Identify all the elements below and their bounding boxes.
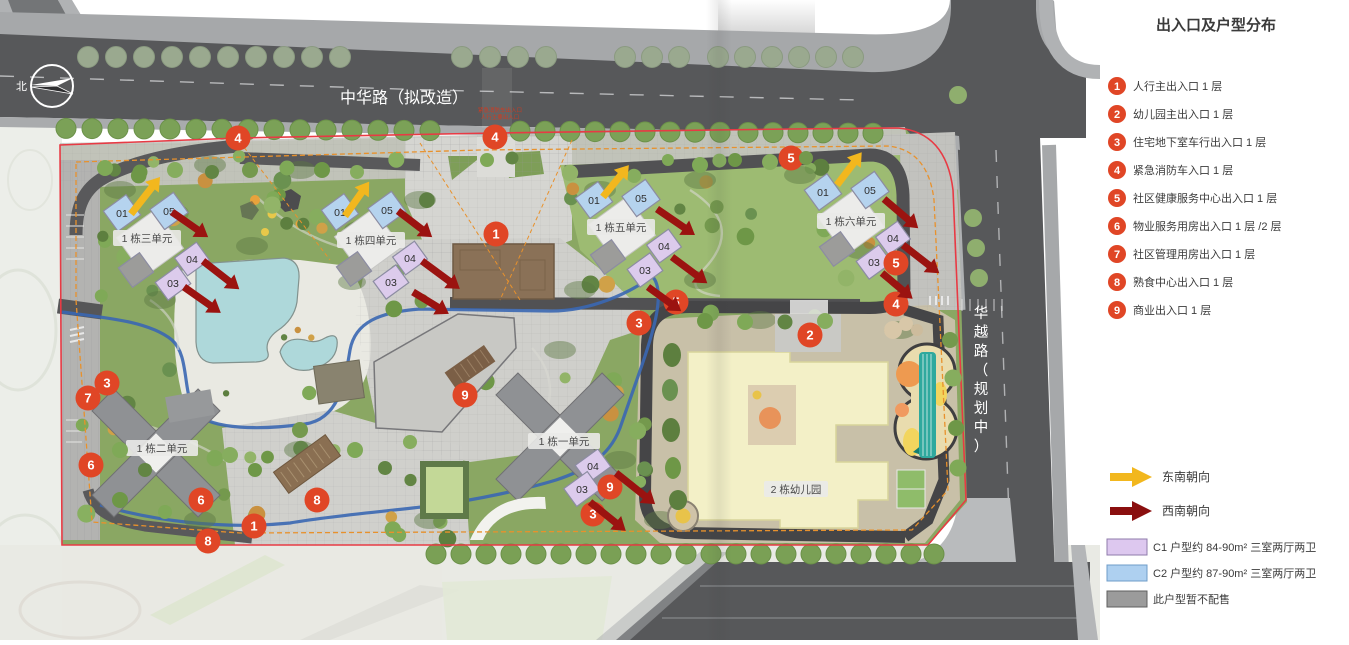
svg-text:物业服务用房出入口 1 层 /2 层: 物业服务用房出入口 1 层 /2 层 [1133, 219, 1282, 233]
svg-text:03: 03 [385, 277, 397, 289]
svg-text:8: 8 [1114, 277, 1120, 289]
svg-text:1 栋五单元: 1 栋五单元 [596, 221, 647, 234]
svg-text:9: 9 [1114, 305, 1120, 317]
svg-text:3: 3 [635, 316, 642, 331]
svg-text:规: 规 [974, 381, 989, 398]
svg-text:幼儿园主出入口 1 层: 幼儿园主出入口 1 层 [1133, 107, 1233, 121]
svg-text:住宅地下室车行出入口 1 层: 住宅地下室车行出入口 1 层 [1133, 135, 1266, 149]
svg-text:01: 01 [588, 195, 600, 207]
svg-text:05: 05 [381, 205, 393, 217]
svg-text:人行主要出入口: 人行主要出入口 [481, 113, 520, 121]
svg-text:03: 03 [868, 257, 880, 269]
svg-text:9: 9 [461, 388, 468, 403]
svg-text:中: 中 [974, 419, 989, 436]
svg-text:04: 04 [404, 253, 416, 265]
svg-text:此户型暂不配售: 此户型暂不配售 [1153, 592, 1230, 606]
svg-text:社区管理用房出入口 1 层: 社区管理用房出入口 1 层 [1133, 247, 1255, 261]
svg-text:8: 8 [204, 534, 211, 549]
svg-text:1: 1 [1114, 81, 1120, 93]
svg-text:路: 路 [974, 343, 989, 360]
svg-text:03: 03 [576, 484, 588, 496]
svg-text:C1 户型约 84-90m² 三室两厅两卫: C1 户型约 84-90m² 三室两厅两卫 [1153, 540, 1316, 554]
svg-text:05: 05 [864, 185, 876, 197]
svg-text:人行主出入口 1 层: 人行主出入口 1 层 [1133, 79, 1222, 93]
svg-text:5: 5 [892, 256, 899, 271]
svg-text:7: 7 [1114, 249, 1120, 261]
svg-text:越: 越 [974, 324, 989, 341]
svg-text:04: 04 [887, 233, 899, 245]
svg-text:4: 4 [892, 297, 900, 312]
svg-text:1 栋一单元: 1 栋一单元 [539, 435, 590, 448]
svg-text:04: 04 [658, 241, 670, 253]
svg-text:03: 03 [639, 265, 651, 277]
svg-text:2 栋幼儿园: 2 栋幼儿园 [771, 483, 822, 496]
svg-text:6: 6 [87, 458, 94, 473]
svg-text:中华路（拟改造）: 中华路（拟改造） [340, 89, 468, 107]
svg-text:4: 4 [1114, 165, 1121, 177]
svg-text:7: 7 [84, 391, 91, 406]
svg-text:1: 1 [250, 519, 257, 534]
svg-text:5: 5 [1114, 193, 1120, 205]
svg-text:2: 2 [1114, 109, 1120, 121]
svg-text:1 栋三单元: 1 栋三单元 [122, 232, 173, 245]
svg-text:社区健康服务中心出入口 1 层: 社区健康服务中心出入口 1 层 [1133, 191, 1277, 205]
svg-text:出入口及户型分布: 出入口及户型分布 [1156, 16, 1276, 34]
svg-text:华: 华 [974, 305, 989, 322]
svg-text:03: 03 [167, 278, 179, 290]
svg-text:紧急消防车入口 1 层: 紧急消防车入口 1 层 [1133, 163, 1233, 177]
svg-text:04: 04 [186, 254, 198, 266]
svg-text:北: 北 [16, 80, 27, 93]
svg-text:4: 4 [491, 130, 499, 145]
svg-text:3: 3 [103, 376, 110, 391]
svg-text:4: 4 [234, 131, 242, 146]
svg-text:东南朝向: 东南朝向 [1162, 469, 1210, 484]
svg-text:04: 04 [587, 461, 599, 473]
svg-text:1 栋二单元: 1 栋二单元 [137, 442, 188, 455]
svg-text:熟食中心出入口 1 层: 熟食中心出入口 1 层 [1133, 275, 1233, 289]
svg-text:05: 05 [635, 193, 647, 205]
svg-text:紧急消防车出入口: 紧急消防车出入口 [478, 106, 522, 114]
svg-text:3: 3 [1114, 137, 1120, 149]
svg-text:1 栋六单元: 1 栋六单元 [826, 215, 877, 228]
svg-text:划: 划 [974, 400, 989, 417]
svg-text:2: 2 [806, 328, 813, 343]
svg-text:商业出入口 1 层: 商业出入口 1 层 [1133, 303, 1211, 317]
svg-text:西南朝向: 西南朝向 [1162, 503, 1210, 518]
svg-text:5: 5 [787, 151, 794, 166]
svg-text:6: 6 [197, 493, 204, 508]
svg-text:6: 6 [1114, 221, 1120, 233]
svg-text:01: 01 [817, 187, 829, 199]
svg-text:01: 01 [116, 208, 128, 220]
svg-text:）: ） [974, 438, 989, 455]
svg-text:C2 户型约 87-90m² 三室两厅两卫: C2 户型约 87-90m² 三室两厅两卫 [1153, 566, 1316, 580]
svg-text:1 栋四单元: 1 栋四单元 [346, 234, 397, 247]
svg-text:8: 8 [313, 493, 320, 508]
svg-text:1: 1 [492, 227, 499, 242]
svg-text:9: 9 [606, 480, 613, 495]
svg-text:（: （ [974, 362, 989, 379]
